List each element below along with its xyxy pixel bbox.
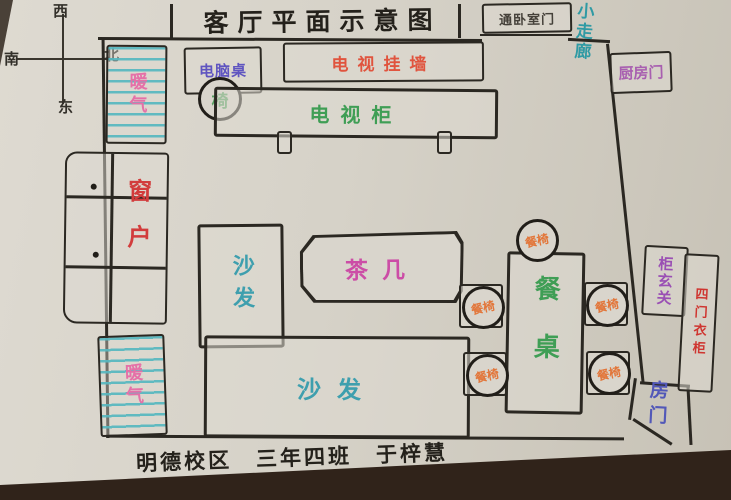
corridor-label: 小走廊 <box>568 1 597 63</box>
dining-chair-left-mid: 餐椅 <box>462 286 505 329</box>
title-frame-left-line <box>170 4 173 38</box>
tv-wall-label: 电视挂墙 <box>331 49 435 75</box>
door-threshold-top <box>480 34 572 36</box>
window-frame: 窗户 <box>63 151 169 324</box>
entry-cabinet-label: 柜玄关 <box>653 255 677 307</box>
kitchen-door-box: 厨房门 <box>609 51 672 94</box>
bedroom-door-box: 通卧室门 <box>482 2 573 34</box>
tv-cabinet-leg-left <box>277 131 292 154</box>
dining-chair-top: 餐椅 <box>516 219 559 262</box>
sofa-bottom-label: 沙发 <box>297 369 377 404</box>
tea-table-top: 茶几 <box>303 234 462 302</box>
sofa-left-box: 沙发 <box>197 224 284 349</box>
bedroom-door-label: 通卧室门 <box>499 8 555 28</box>
tv-wall-box: 电视挂墙 <box>283 41 484 82</box>
sofa-left-label: 沙发 <box>225 254 258 318</box>
tv-cabinet-label: 电视柜 <box>309 98 402 128</box>
dining-chair-label: 餐椅 <box>596 363 623 385</box>
radiator-top-label: 暖气 <box>123 71 149 117</box>
tea-table: 茶几 <box>300 231 465 305</box>
compass-south-label: 南 <box>4 48 19 69</box>
dining-chair-label: 餐椅 <box>524 230 551 252</box>
wardrobe-label: 四门衣柜 <box>687 287 710 360</box>
dining-chair-left-bottom: 餐椅 <box>466 354 509 397</box>
photo-of-floor-plan: 客厅平面示意图 西 南 北 东 通卧室门 小走廊 厨房门 暖气 暖气 电脑桌 椅 <box>0 0 731 500</box>
sofa-bottom-box: 沙发 <box>204 335 471 438</box>
room-door-label: 房门 <box>643 379 673 430</box>
radiator-top: 暖气 <box>106 45 168 145</box>
page-title: 客厅平面示意图 <box>175 0 470 40</box>
window-divider-vertical <box>109 154 114 322</box>
tea-table-label: 茶几 <box>345 250 419 285</box>
compass-horizontal-line <box>16 58 114 60</box>
wall-right <box>606 44 645 382</box>
tv-cabinet-leg-right <box>437 131 452 154</box>
radiator-bottom-label: 暖气 <box>119 362 147 409</box>
dining-chair-label: 餐椅 <box>474 365 501 387</box>
dining-table-box: 餐桌 <box>505 251 586 414</box>
window-handle-dot-1 <box>91 184 97 190</box>
window-label: 窗户 <box>120 178 156 270</box>
dining-table-label: 餐桌 <box>525 275 564 392</box>
compass-east-label: 东 <box>58 96 73 117</box>
wardrobe-box: 四门衣柜 <box>677 253 719 393</box>
title-frame-right-line <box>458 4 461 38</box>
dining-chair-right-bottom: 餐椅 <box>588 352 631 395</box>
wall-stub-bottom-right <box>686 387 692 445</box>
radiator-bottom: 暖气 <box>97 334 167 437</box>
tv-cabinet-box: 电视柜 <box>214 87 498 139</box>
dining-chair-label: 餐椅 <box>594 295 621 317</box>
dining-chair-label: 餐椅 <box>470 297 497 319</box>
kitchen-door-label: 厨房门 <box>618 61 664 84</box>
window-handle-dot-2 <box>93 252 99 258</box>
compass-west-label: 西 <box>53 0 68 21</box>
dining-chair-right-mid: 餐椅 <box>586 284 629 327</box>
